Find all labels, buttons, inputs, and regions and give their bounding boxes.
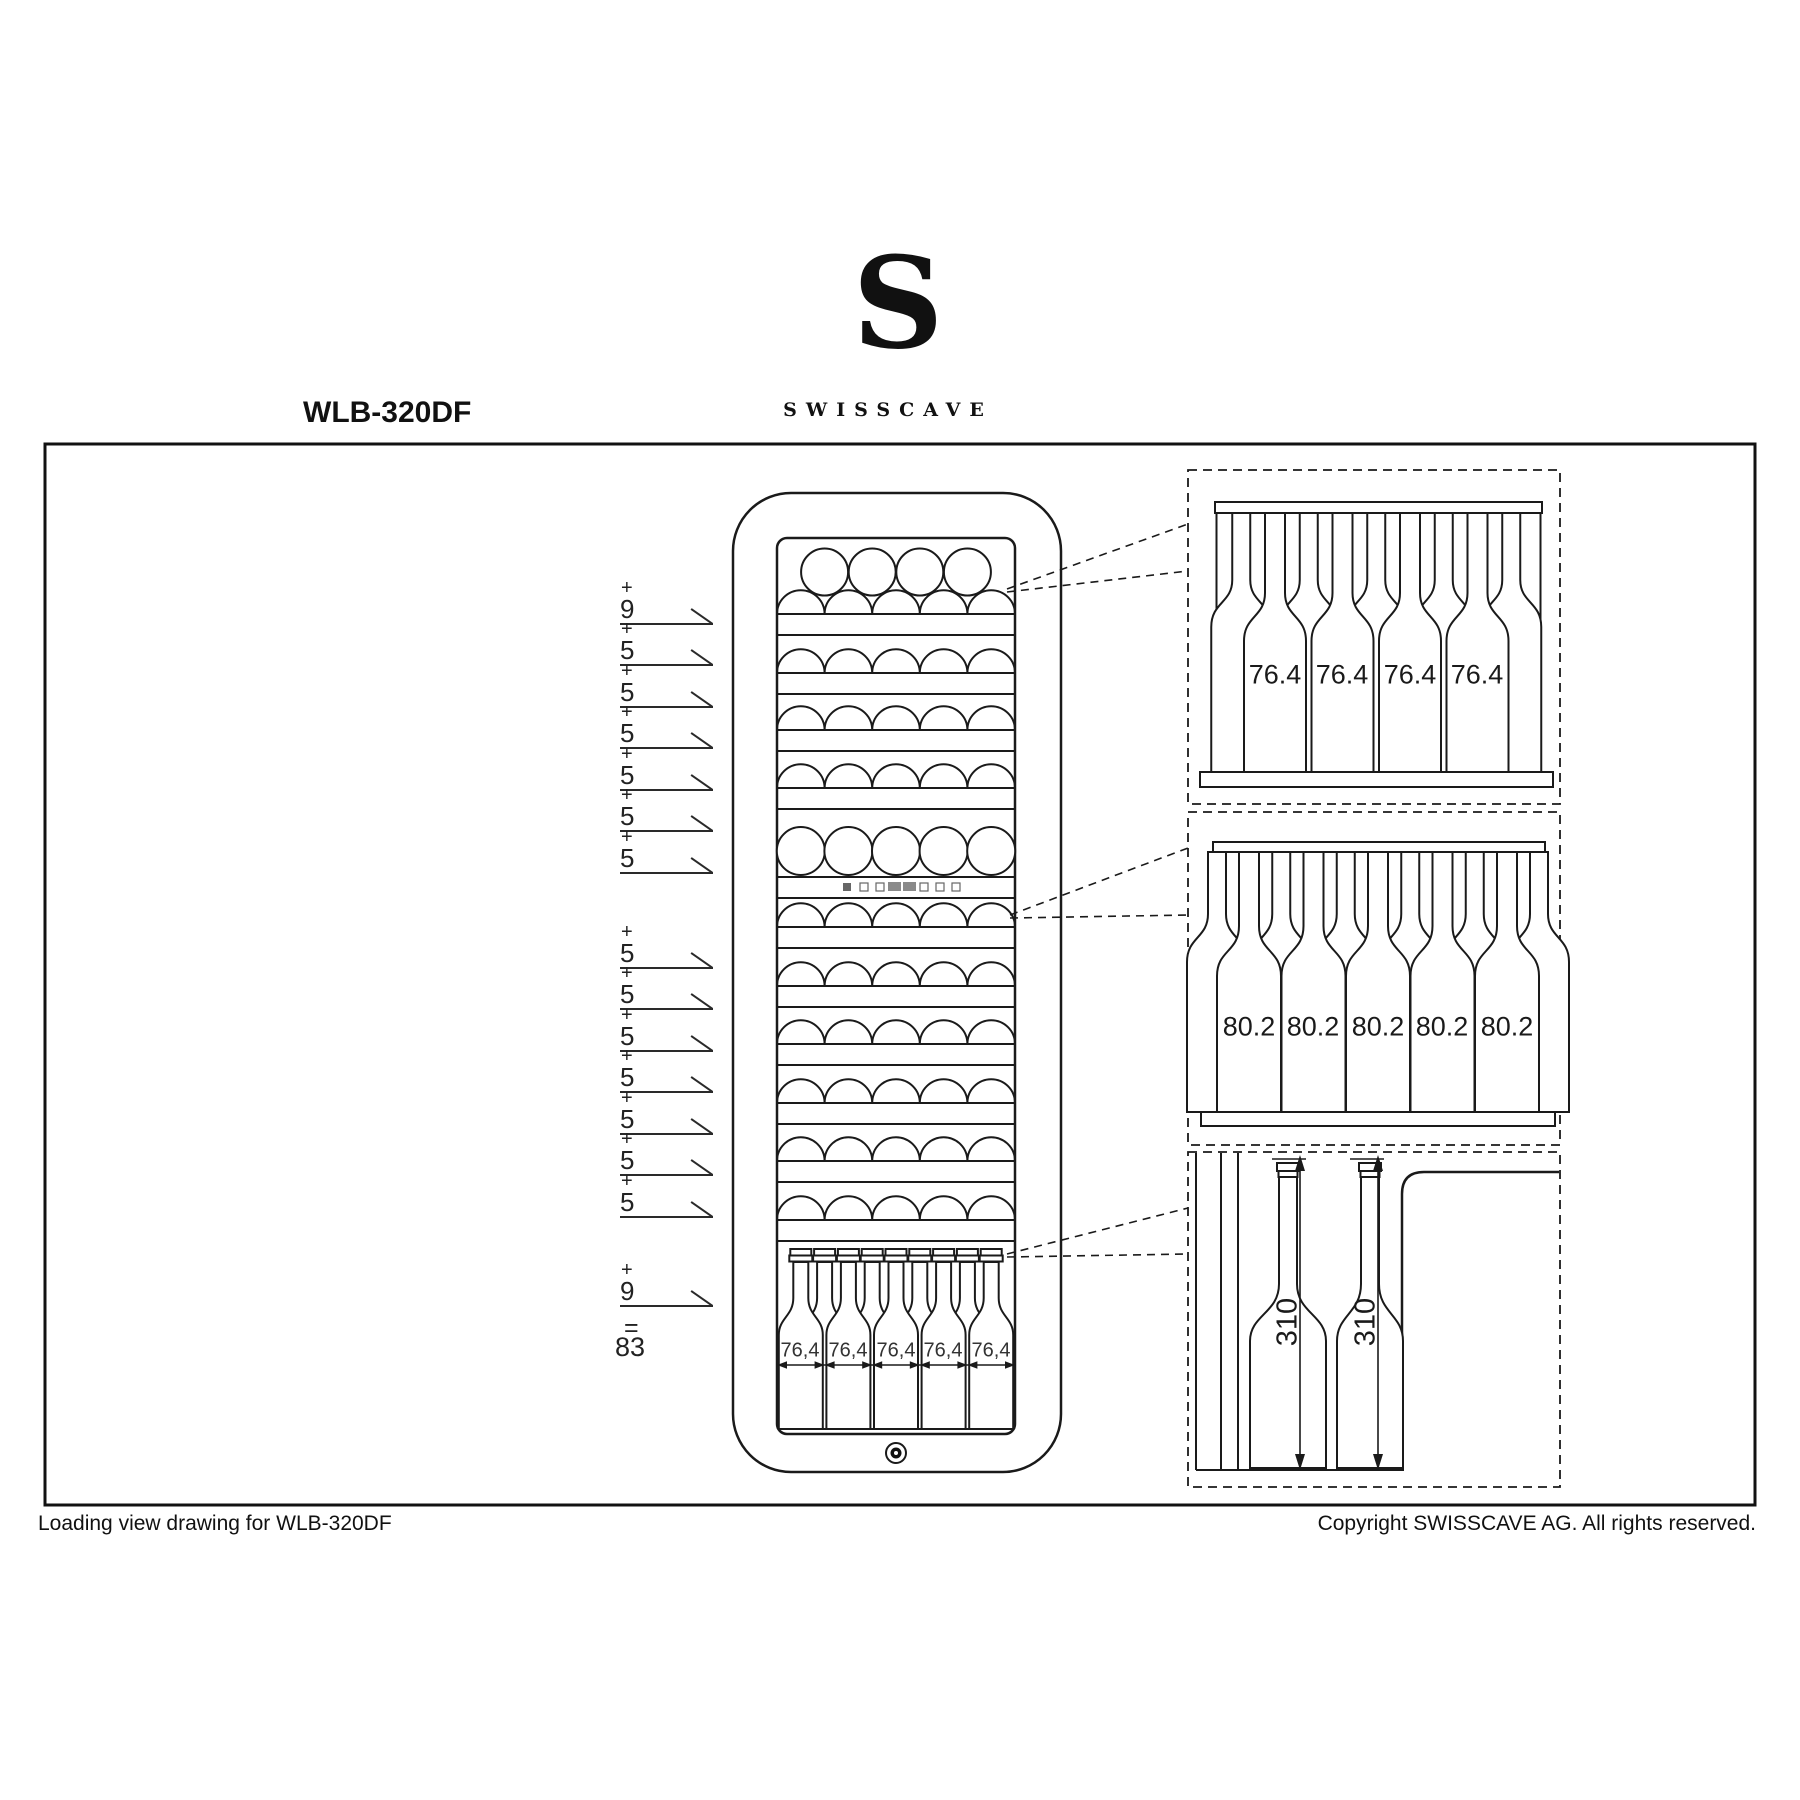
dimension-label: 80.2	[1416, 1012, 1469, 1043]
tally-entry: + 5	[620, 925, 713, 969]
tally-count: 5	[620, 679, 713, 706]
dimension-label: 76.4	[1316, 660, 1369, 691]
bottle-arc-rows	[777, 649, 1015, 1220]
button-icon	[920, 883, 928, 891]
power-icon	[843, 883, 851, 891]
plus-sign: +	[621, 747, 713, 762]
plus-sign: +	[621, 1263, 713, 1278]
tally-total: 83	[615, 1332, 645, 1363]
door-cross-section	[1402, 1172, 1559, 1470]
door-lock-icon	[886, 1443, 906, 1463]
tally-entry: + 9	[620, 1263, 713, 1307]
tally-entry: + 5	[620, 622, 713, 666]
plus-sign: +	[621, 705, 713, 720]
tally-count: 5	[620, 1064, 713, 1091]
plus-sign: +	[621, 1091, 713, 1106]
dimension-label: 80.2	[1481, 1012, 1534, 1043]
tally-entry: + 5	[620, 788, 713, 832]
tally-entry: + 5	[620, 1049, 713, 1093]
tally-entry: + 5	[620, 966, 713, 1010]
page-title: WLB-320DF	[303, 396, 471, 430]
loading-view-drawing-page: S SWISSCAVE WLB-320DF + 9 + 5 + 5 + 5 + …	[0, 0, 1800, 1800]
dimension-label: 310	[1272, 1298, 1305, 1346]
dimension-label: 76.4	[1384, 660, 1437, 691]
plus-sign: +	[621, 1008, 713, 1023]
tally-count: 5	[620, 1147, 713, 1174]
button-icon	[936, 883, 944, 891]
button-icon	[876, 883, 884, 891]
tally-count: 9	[620, 596, 713, 623]
tally-count: 5	[620, 1189, 713, 1216]
tally-count: 5	[620, 637, 713, 664]
shelf-bands	[777, 614, 1015, 1241]
dimension-label: 310	[1350, 1298, 1383, 1346]
tally-count: 5	[620, 803, 713, 830]
dimension-label: 80.2	[1223, 1012, 1276, 1043]
dimension-label: 76,4	[781, 1340, 820, 1363]
tally-count: 5	[620, 981, 713, 1008]
plus-sign: +	[621, 788, 713, 803]
tally-entry: + 5	[620, 1091, 713, 1135]
dimension-label: 76,4	[877, 1340, 916, 1363]
plus-sign: +	[621, 1049, 713, 1064]
tally-entry: + 5	[620, 1008, 713, 1052]
detail-middle-shelf	[1187, 812, 1569, 1145]
tally-entry: + 9	[620, 581, 713, 625]
tally-entry: + 5	[620, 705, 713, 749]
button-icon	[860, 883, 868, 891]
cabinet-front-view	[733, 493, 1061, 1472]
callout-connectors	[1007, 524, 1188, 1257]
plus-sign: +	[621, 966, 713, 981]
plus-sign: +	[621, 1132, 713, 1147]
tally-entry: + 5	[620, 1174, 713, 1218]
dimension-label: 80.2	[1287, 1012, 1340, 1043]
button-icon	[952, 883, 960, 891]
tally-entry: + 5	[620, 747, 713, 791]
tally-count: 5	[620, 762, 713, 789]
dimension-label: 76,4	[924, 1340, 963, 1363]
tally-count: 9	[620, 1278, 713, 1305]
tally-count: 5	[620, 1106, 713, 1133]
tally-count: 5	[620, 845, 713, 872]
tally-count: 5	[620, 940, 713, 967]
tally-entry: + 5	[620, 1132, 713, 1176]
plus-sign: +	[621, 1174, 713, 1189]
bottle-row-nine	[777, 549, 1015, 615]
control-panel	[843, 882, 960, 891]
dimension-label: 80.2	[1352, 1012, 1405, 1043]
tally-entry: + 5	[620, 830, 713, 874]
plus-sign: +	[621, 830, 713, 845]
display-icon	[903, 882, 916, 891]
dimension-label: 76,4	[829, 1340, 868, 1363]
tally-entry: + 5	[620, 664, 713, 708]
bottle-circle-row	[777, 827, 1015, 875]
detail-top-shelf	[1188, 470, 1560, 804]
plus-sign: +	[621, 581, 713, 596]
dimension-label: 76.4	[1249, 660, 1302, 691]
dimension-label: 76,4	[972, 1340, 1011, 1363]
tally-count: 5	[620, 720, 713, 747]
dimension-label: 76.4	[1451, 660, 1504, 691]
plus-sign: +	[621, 925, 713, 940]
tally-count: 5	[620, 1023, 713, 1050]
brand-wordmark: SWISSCAVE	[758, 399, 1018, 421]
brand-monogram-icon: S	[846, 240, 950, 366]
copyright-notice: Copyright SWISSCAVE AG. All rights reser…	[0, 1512, 1756, 1536]
display-icon	[888, 882, 901, 891]
plus-sign: +	[621, 622, 713, 637]
plus-sign: +	[621, 664, 713, 679]
